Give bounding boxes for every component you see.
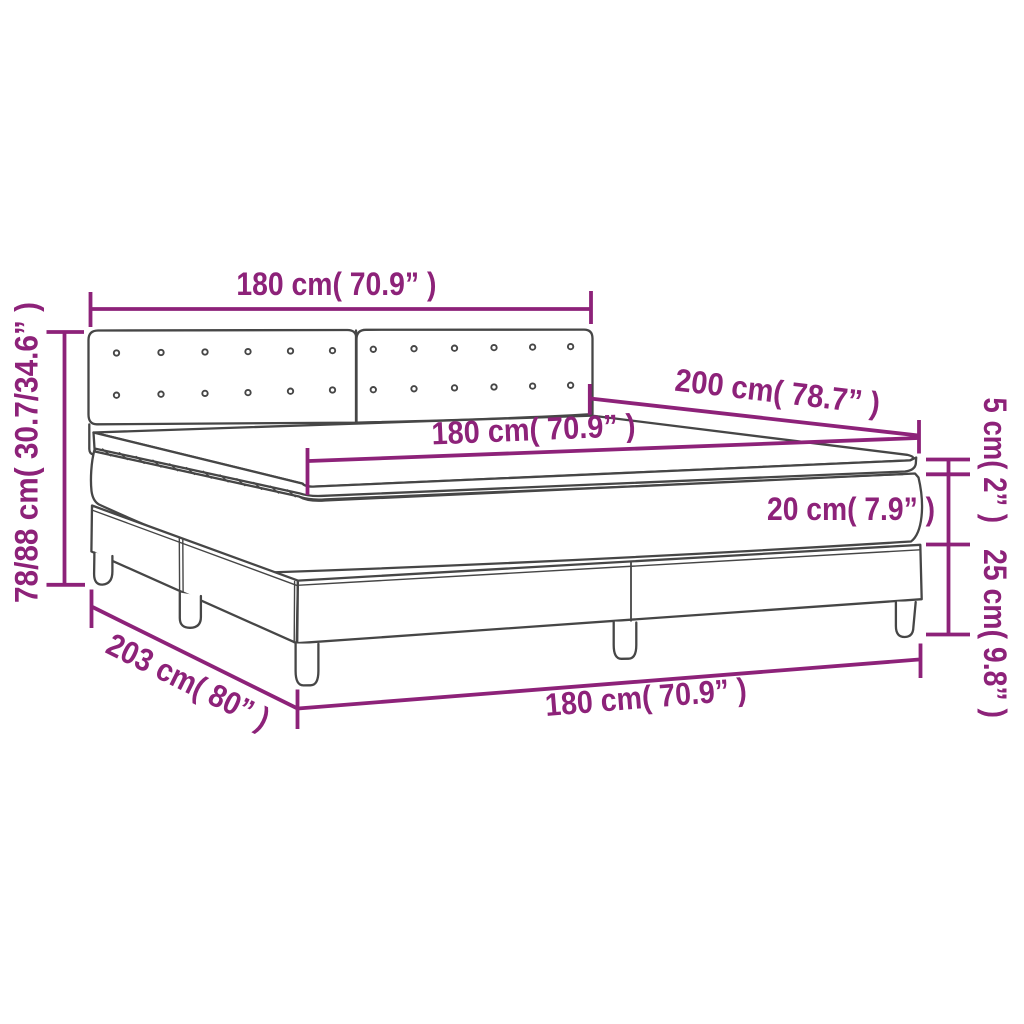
svg-text:180 cm( 70.9” ): 180 cm( 70.9” ) <box>236 266 436 302</box>
svg-text:20 cm( 7.9” ): 20 cm( 7.9” ) <box>767 491 935 527</box>
svg-text:203 cm( 80” ): 203 cm( 80” ) <box>101 626 276 737</box>
svg-text:180 cm( 70.9” ): 180 cm( 70.9” ) <box>544 671 748 723</box>
svg-text:25 cm( 9.8” ): 25 cm( 9.8” ) <box>977 549 1013 718</box>
svg-text:5 cm( 2” ): 5 cm( 2” ) <box>977 398 1013 524</box>
svg-text:78/88 cm( 30.7/34.6” ): 78/88 cm( 30.7/34.6” ) <box>9 302 45 603</box>
